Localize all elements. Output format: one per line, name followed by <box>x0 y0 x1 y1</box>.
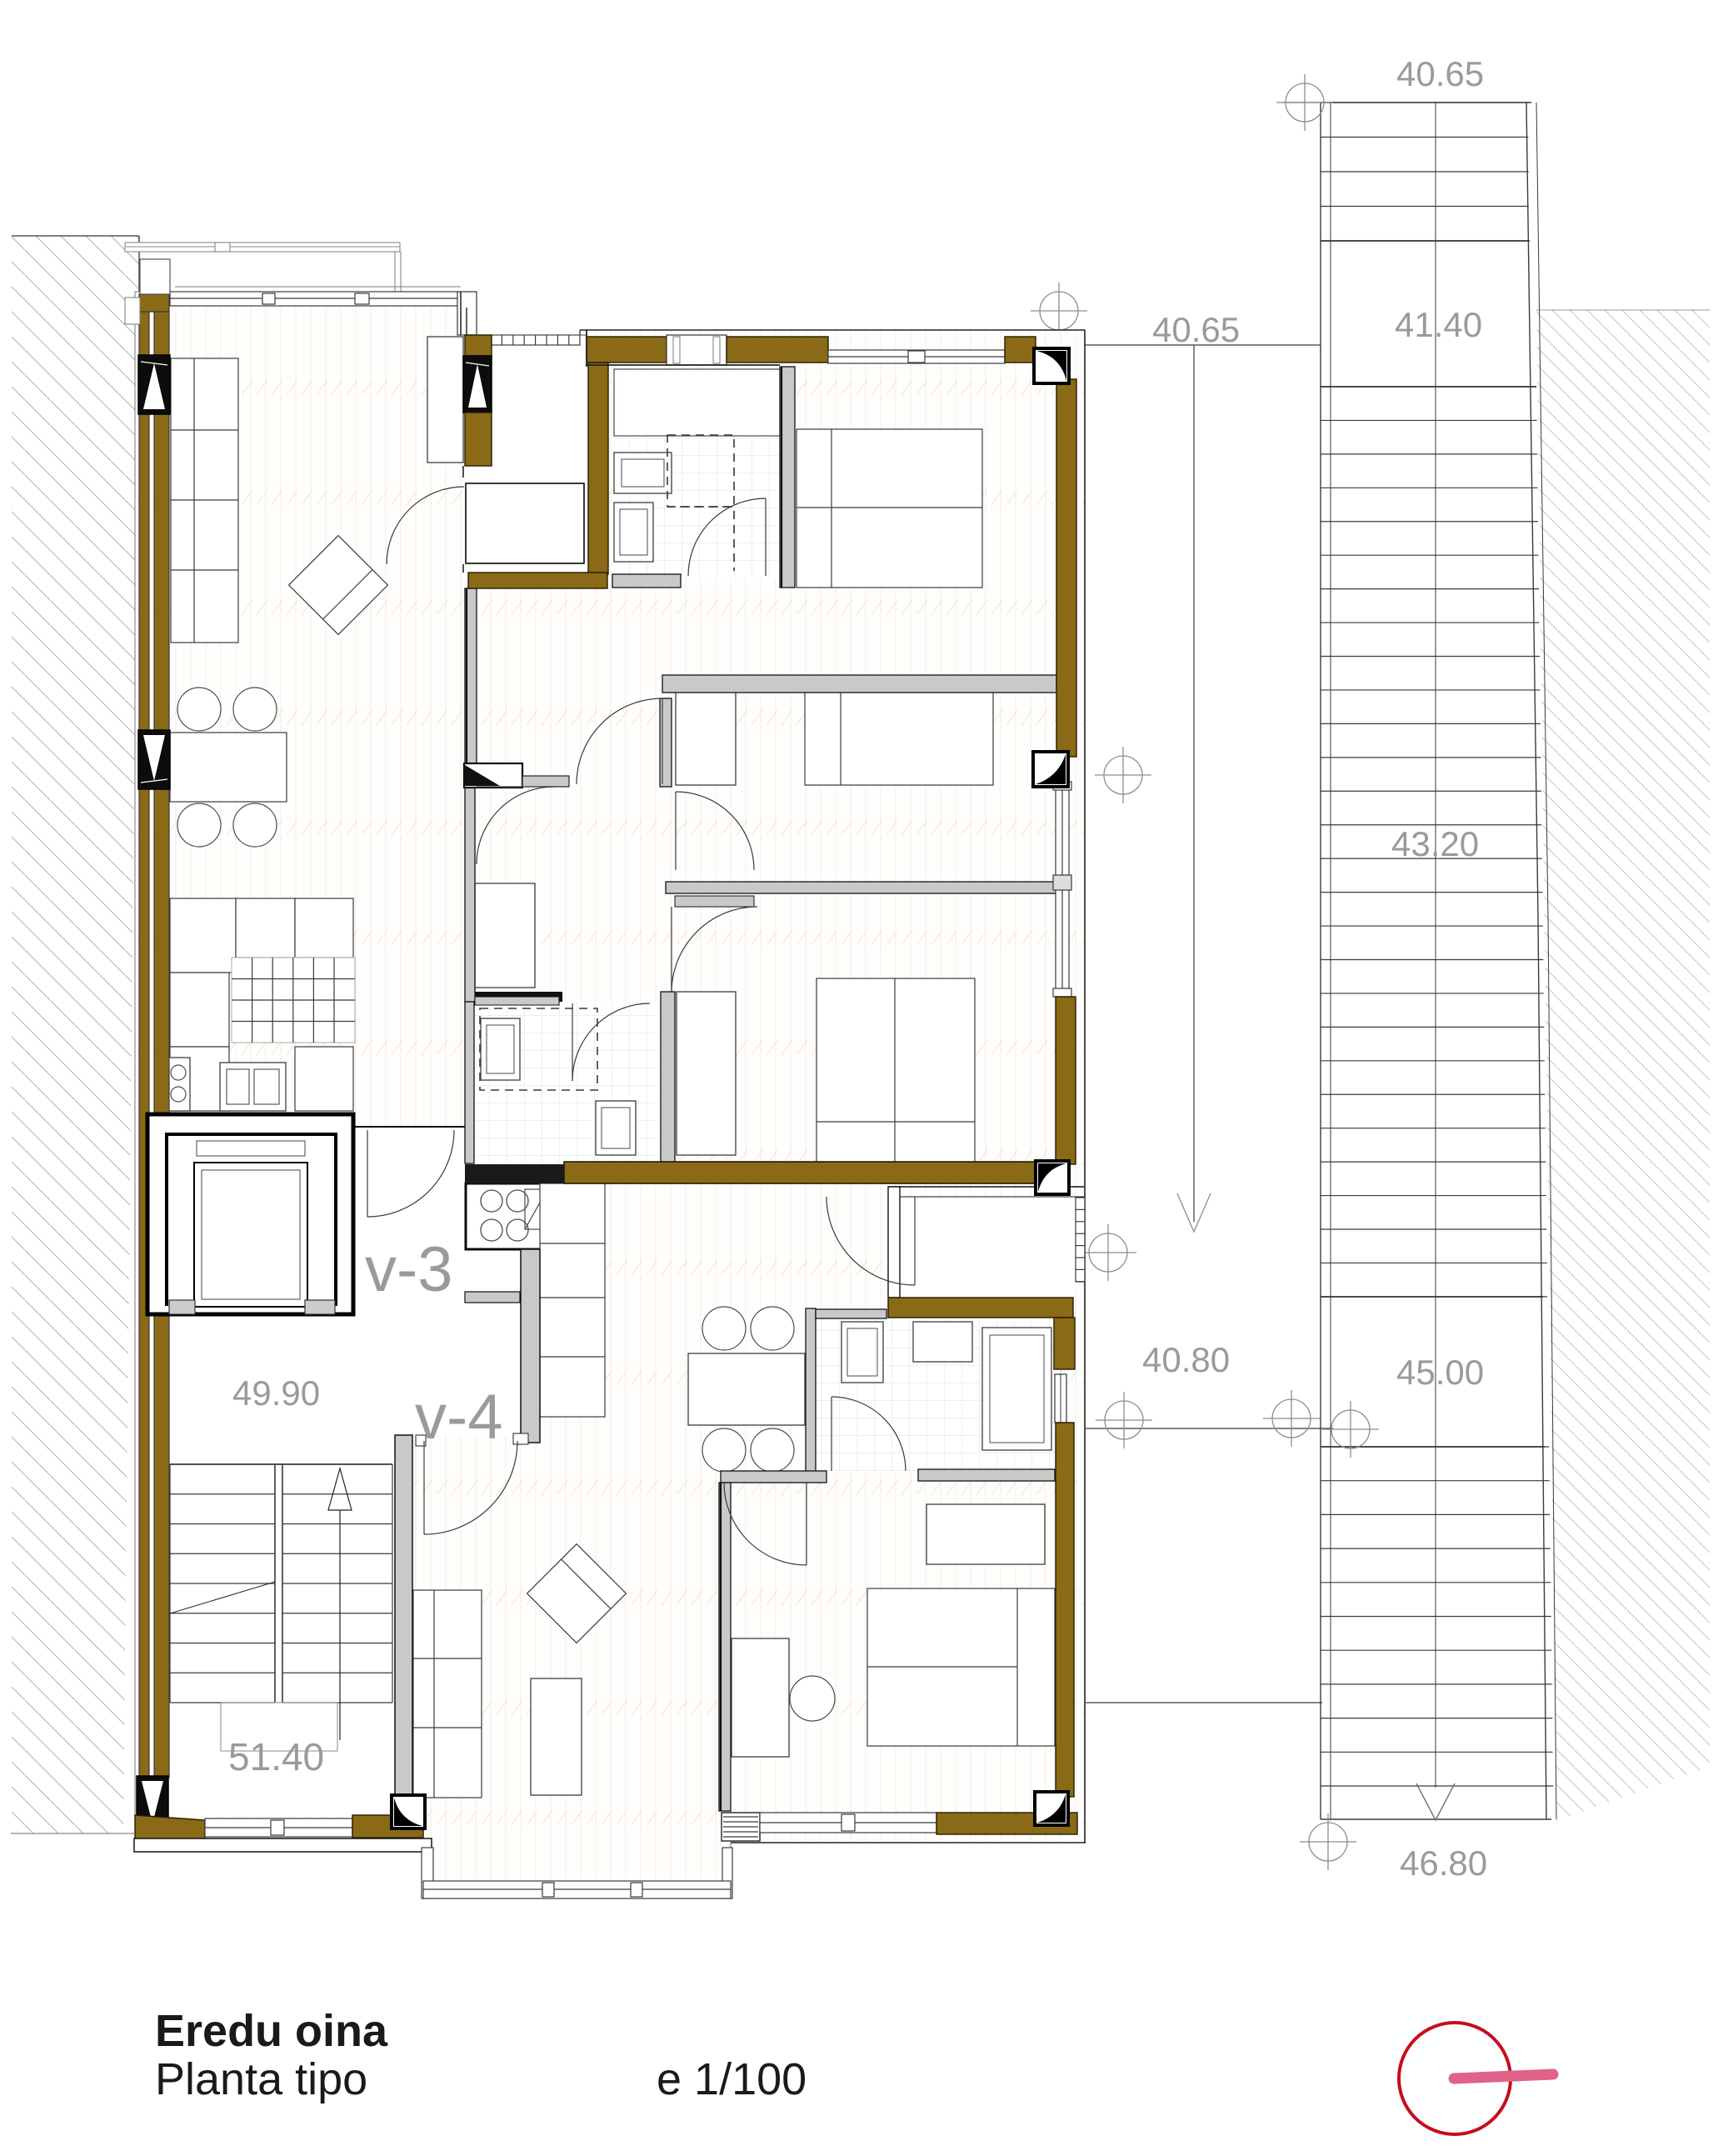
svg-text:Eredu oina: Eredu oina <box>155 2006 388 2056</box>
svg-text:45.00: 45.00 <box>1396 1353 1484 1392</box>
svg-text:v-3: v-3 <box>365 1234 453 1305</box>
svg-text:40.65: 40.65 <box>1152 310 1240 349</box>
svg-text:e 1/100: e 1/100 <box>657 2054 807 2104</box>
svg-text:Planta tipo: Planta tipo <box>155 2054 367 2104</box>
svg-text:40.80: 40.80 <box>1142 1340 1230 1379</box>
svg-text:40.65: 40.65 <box>1396 54 1484 93</box>
svg-text:41.40: 41.40 <box>1395 305 1482 344</box>
svg-text:v-4: v-4 <box>415 1382 503 1453</box>
svg-text:43.20: 43.20 <box>1391 824 1479 863</box>
svg-text:51.40: 51.40 <box>228 1735 324 1778</box>
svg-text:46.80: 46.80 <box>1400 1843 1487 1883</box>
svg-text:49.90: 49.90 <box>232 1373 320 1413</box>
